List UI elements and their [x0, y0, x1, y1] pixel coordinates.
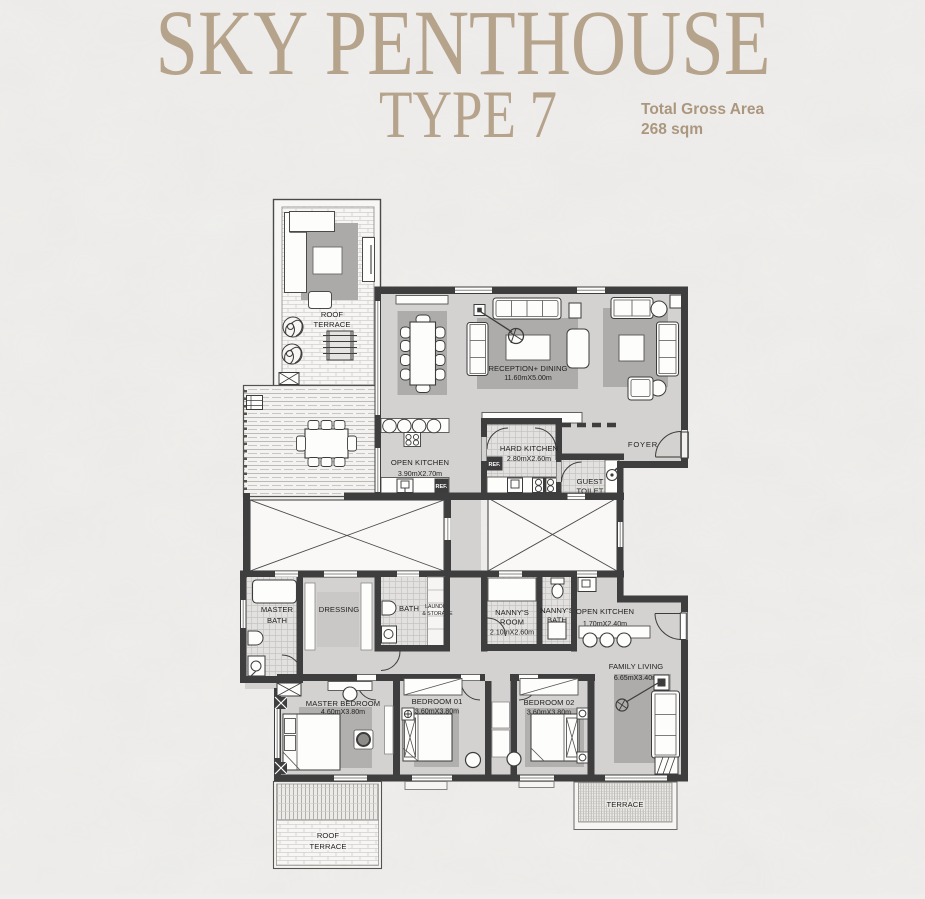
- svg-text:NANNY'S: NANNY'S: [540, 606, 574, 615]
- svg-text:NANNY'S: NANNY'S: [495, 608, 529, 617]
- svg-text:OPEN KITCHEN: OPEN KITCHEN: [576, 607, 634, 616]
- svg-text:Total Gross Area: Total Gross Area: [641, 101, 765, 118]
- svg-text:BATH: BATH: [399, 604, 419, 613]
- svg-text:BEDROOM 01: BEDROOM 01: [412, 697, 463, 706]
- svg-text:BATH: BATH: [547, 616, 567, 625]
- svg-text:BATH: BATH: [267, 616, 287, 625]
- svg-text:MASTER: MASTER: [261, 605, 294, 614]
- svg-text:DRESSING: DRESSING: [319, 605, 359, 614]
- svg-text:FAMILY LIVING: FAMILY LIVING: [609, 662, 664, 671]
- svg-text:REF.: REF.: [489, 462, 501, 468]
- svg-text:BEDROOM 02: BEDROOM 02: [524, 698, 575, 707]
- svg-text:3.60mX3.80m: 3.60mX3.80m: [415, 708, 459, 716]
- svg-text:RECEPTION+ DINING: RECEPTION+ DINING: [488, 364, 567, 373]
- svg-text:268 sqm: 268 sqm: [641, 121, 703, 138]
- svg-text:ROOM: ROOM: [500, 618, 524, 627]
- svg-text:MASTER BEDROOM: MASTER BEDROOM: [306, 699, 380, 708]
- svg-text:4.60mX3.80m: 4.60mX3.80m: [321, 708, 365, 716]
- svg-text:11.60mX5.00m: 11.60mX5.00m: [504, 374, 552, 382]
- svg-text:2.10mX2.60m: 2.10mX2.60m: [490, 629, 534, 637]
- svg-text:TERRACE: TERRACE: [314, 320, 351, 329]
- svg-text:OPEN KITCHEN: OPEN KITCHEN: [391, 458, 449, 467]
- svg-text:3.90mX2.70m: 3.90mX2.70m: [398, 470, 442, 478]
- svg-text:6.65mX3.40m: 6.65mX3.40m: [614, 674, 658, 682]
- svg-text:HARD KITCHEN: HARD KITCHEN: [500, 444, 558, 453]
- svg-text:2.80mX2.60m: 2.80mX2.60m: [507, 455, 551, 463]
- svg-text:REF.: REF.: [436, 484, 448, 490]
- svg-text:TYPE 7: TYPE 7: [379, 76, 557, 152]
- svg-text:ROOF: ROOF: [317, 831, 340, 840]
- svg-text:3.60mX3.80m: 3.60mX3.80m: [527, 709, 571, 717]
- svg-text:TERRACE: TERRACE: [607, 800, 644, 809]
- svg-text:ROOF: ROOF: [321, 310, 344, 319]
- svg-text:TERRACE: TERRACE: [310, 842, 347, 851]
- svg-text:GUEST: GUEST: [577, 477, 604, 486]
- svg-text:FOYER: FOYER: [628, 440, 658, 449]
